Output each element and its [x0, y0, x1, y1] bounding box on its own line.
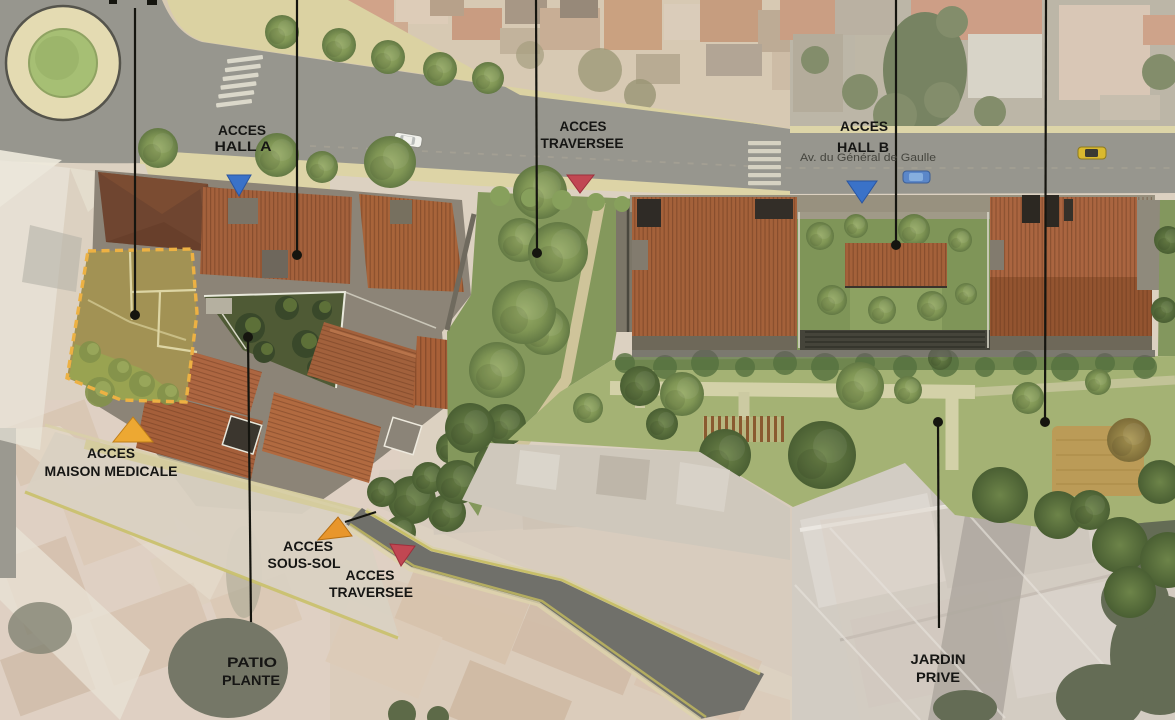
- svg-text:ACCES: ACCES: [87, 445, 135, 461]
- svg-text:PATIO: PATIO: [227, 654, 277, 670]
- svg-text:MAISON MEDICALE: MAISON MEDICALE: [45, 463, 178, 479]
- svg-text:PRIVE: PRIVE: [916, 669, 960, 685]
- svg-text:SOUS-SOL: SOUS-SOL: [268, 555, 341, 571]
- svg-text:PLANTE: PLANTE: [222, 672, 280, 688]
- svg-text:TRAVERSEE: TRAVERSEE: [329, 584, 413, 600]
- svg-text:ACCES: ACCES: [560, 118, 607, 134]
- svg-text:ACCES: ACCES: [218, 122, 266, 138]
- svg-text:Av. du Général de Gaulle: Av. du Général de Gaulle: [800, 152, 936, 164]
- svg-text:ACCES: ACCES: [840, 118, 888, 134]
- svg-text:TRAVERSEE: TRAVERSEE: [541, 135, 624, 151]
- svg-text:ACCES: ACCES: [346, 567, 395, 583]
- svg-text:HALL A: HALL A: [215, 138, 272, 154]
- svg-text:ACCES: ACCES: [283, 538, 333, 554]
- svg-text:JARDIN: JARDIN: [911, 651, 966, 667]
